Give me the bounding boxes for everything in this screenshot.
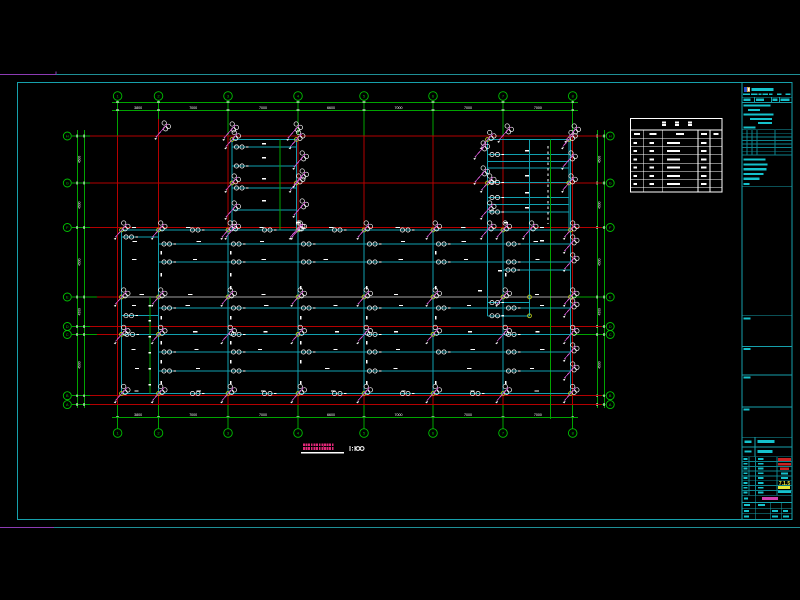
svg-text:4500: 4500 [78, 156, 82, 164]
svg-text:7000: 7000 [464, 106, 472, 110]
svg-text:7000: 7000 [464, 413, 472, 417]
svg-text:7000: 7000 [259, 106, 267, 110]
svg-text:H: H [66, 135, 69, 139]
svg-text:6600: 6600 [327, 413, 335, 417]
svg-text:4500: 4500 [598, 308, 602, 316]
svg-text:7000: 7000 [259, 413, 267, 417]
svg-text:7000: 7000 [395, 106, 403, 110]
svg-text:B: B [66, 394, 69, 398]
svg-text:4500: 4500 [598, 156, 602, 164]
svg-text:4500: 4500 [598, 361, 602, 369]
svg-text:7000: 7000 [534, 413, 542, 417]
svg-text:3800: 3800 [134, 106, 142, 110]
svg-text:7.1.5: 7.1.5 [779, 481, 791, 487]
svg-text:G: G [609, 182, 612, 186]
svg-text:7000: 7000 [189, 106, 197, 110]
svg-text:3800: 3800 [134, 413, 142, 417]
svg-text:H: H [609, 135, 612, 139]
svg-text:A: A [66, 403, 69, 407]
svg-text:4500: 4500 [598, 258, 602, 266]
svg-text:7000: 7000 [534, 106, 542, 110]
svg-text:A: A [609, 403, 612, 407]
svg-text:4500: 4500 [78, 201, 82, 209]
svg-text:C: C [66, 333, 69, 337]
svg-text:E: E [66, 296, 69, 300]
svg-text:D: D [609, 325, 612, 329]
svg-text:4500: 4500 [78, 258, 82, 266]
svg-text:4500: 4500 [598, 201, 602, 209]
svg-text:6600: 6600 [327, 106, 335, 110]
svg-text:B: B [609, 394, 612, 398]
svg-text:C: C [609, 333, 612, 337]
svg-text:4500: 4500 [78, 361, 82, 369]
svg-text:G: G [66, 182, 69, 186]
svg-text:E: E [609, 296, 612, 300]
svg-text:7000: 7000 [189, 413, 197, 417]
svg-text:4500: 4500 [78, 308, 82, 316]
svg-text:D: D [66, 325, 69, 329]
svg-text:7000: 7000 [395, 413, 403, 417]
